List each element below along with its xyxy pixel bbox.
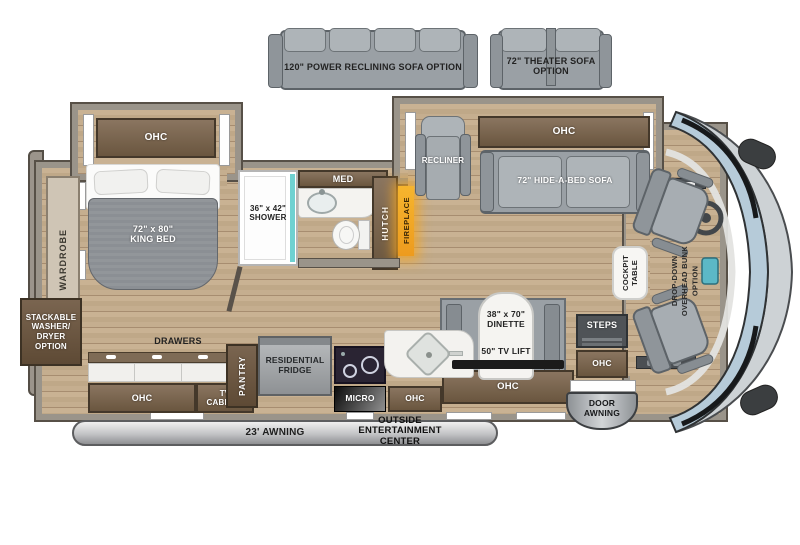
kitchen-ohc-left-label: OHC <box>132 393 153 403</box>
bedroom-window <box>219 114 230 166</box>
toilet <box>330 218 372 252</box>
fridge-label: RESIDENTIAL FRIDGE <box>266 356 325 376</box>
fridge-top <box>260 338 330 345</box>
overhead-bunk-label: DROP-DOWN OVERHEAD BUNK OPTION <box>670 246 700 316</box>
outside-entertainment-label: OUTSIDE ENTERTAINMENT CENTER <box>332 416 468 447</box>
body-window-strip <box>150 412 204 420</box>
pantry-label: PANTRY <box>237 356 247 396</box>
king-bed: 72" x 80" KING BED <box>86 162 220 290</box>
recliner: RECLINER <box>414 114 472 204</box>
wardrobe-label: WARDROBE <box>58 229 69 291</box>
counter-top <box>88 363 228 382</box>
counter-divider <box>134 363 135 382</box>
dinette-label: 38" x 70" DINETTE <box>454 310 558 330</box>
recliner-label: RECLINER <box>412 156 474 165</box>
burner <box>343 364 357 378</box>
shower: 36" x 42" SHOWER <box>238 170 298 266</box>
hide-a-bed-sofa: 72" HIDE-A-BED SOFA <box>480 150 650 214</box>
body-window-strip <box>516 412 566 420</box>
bedroom-ohc-label: OHC <box>145 132 168 144</box>
washer-dryer-label: STACKABLE WASHER/ DRYER OPTION <box>26 313 77 351</box>
sofa-back-cushion <box>501 28 547 52</box>
toilet-seat <box>339 226 354 244</box>
awning-label: 23' AWNING <box>200 427 350 439</box>
power-sofa-label: 120" POWER RECLINING SOFA OPTION <box>274 62 472 72</box>
fireplace: FIREPLACE <box>398 186 414 256</box>
bath-sink <box>307 192 337 214</box>
drawers-label: DRAWERS <box>133 336 223 346</box>
theater-sofa-option: 72" THEATER SOFA OPTION <box>490 26 612 96</box>
microwave: MICRO <box>334 386 386 412</box>
hutch-label: HUTCH <box>380 206 390 241</box>
front-cap <box>630 90 800 455</box>
living-ohc-cabinet: OHC <box>478 116 650 148</box>
entry-ohc: OHC <box>576 350 628 378</box>
washer-dryer-option: STACKABLE WASHER/ DRYER OPTION <box>20 298 82 366</box>
fireplace-label: FIREPLACE <box>402 197 411 244</box>
sofa-back-cushion <box>419 28 461 52</box>
king-bed-label: 72" x 80" KING BED <box>86 224 220 245</box>
steps-label: STEPS <box>578 320 626 330</box>
dinette-ohc-label: OHC <box>497 382 519 393</box>
sofa-back-cushion <box>284 28 326 52</box>
tv-lift-label: 50" TV LIFT <box>454 347 558 357</box>
step-tread <box>582 338 622 341</box>
sofa-armrest <box>463 34 478 88</box>
overhead-bunk-option: DROP-DOWN OVERHEAD BUNK OPTION <box>662 222 708 340</box>
door-awning: DOOR AWNING <box>566 392 638 430</box>
kitchen-ohc-mid: OHC <box>388 386 442 412</box>
bath-wall <box>298 258 400 268</box>
recliner-seat <box>426 136 460 200</box>
drawer-pull <box>152 355 162 359</box>
pillow <box>155 169 210 196</box>
living-ohc-label: OHC <box>553 126 576 138</box>
residential-fridge: RESIDENTIAL FRIDGE <box>258 336 332 396</box>
cooktop <box>334 346 386 384</box>
shower-label: 36" x 42" SHOWER <box>240 204 296 222</box>
power-reclining-sofa-option: 120" POWER RECLINING SOFA OPTION <box>268 26 478 96</box>
cockpit-table-label: COCKPIT TABLE <box>621 255 639 291</box>
entry-steps: STEPS <box>576 314 628 348</box>
door-awning-label: DOOR AWNING <box>568 399 636 419</box>
hide-a-bed-label: 72" HIDE-A-BED SOFA <box>480 176 650 186</box>
kitchen-ohc-left: OHC <box>88 383 196 413</box>
faucet <box>319 189 325 195</box>
hutch: HUTCH <box>372 176 398 270</box>
med-label: MED <box>333 174 354 184</box>
theater-sofa-label: 72" THEATER SOFA OPTION <box>492 56 610 77</box>
burner <box>361 356 379 374</box>
sofa-back-cushion <box>374 28 416 52</box>
drawer-pull <box>106 355 116 359</box>
pantry: PANTRY <box>226 344 258 408</box>
kitchen-counter <box>88 352 228 382</box>
bath-vanity <box>298 188 378 218</box>
pillow <box>93 169 148 196</box>
bedroom-window <box>83 114 94 166</box>
sofa-back-cushion <box>555 28 601 52</box>
drawer-pull <box>198 355 208 359</box>
entry-door <box>570 380 636 392</box>
step-tread <box>582 343 622 346</box>
tv-lift-screen <box>452 360 564 369</box>
cooktop-knob <box>341 352 345 356</box>
rv-floorplan: 120" POWER RECLINING SOFA OPTION 72" THE… <box>0 0 800 545</box>
kitchen-ohc-mid-label: OHC <box>405 394 425 404</box>
sofa-back-cushion <box>329 28 371 52</box>
sink-drain <box>426 352 432 358</box>
bedroom-ohc-cabinet: OHC <box>96 118 216 158</box>
entry-ohc-label: OHC <box>592 359 612 369</box>
cockpit-table: COCKPIT TABLE <box>612 246 648 300</box>
counter-divider <box>181 363 182 382</box>
sofa-armrest <box>268 34 283 88</box>
micro-label: MICRO <box>345 394 374 404</box>
